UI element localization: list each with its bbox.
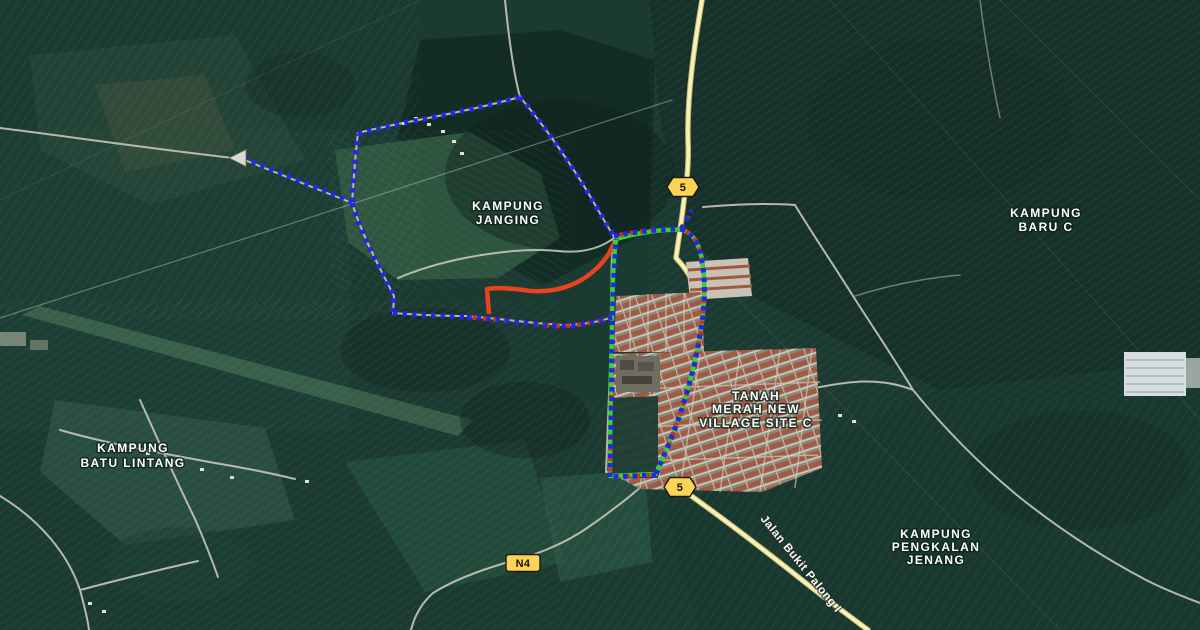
svg-text:BATU LINTANG: BATU LINTANG [80,456,185,470]
svg-text:JANGING: JANGING [476,213,540,227]
svg-text:PENGKALAN: PENGKALAN [892,540,981,554]
svg-text:JENANG: JENANG [907,553,965,567]
route-shield-n4: N4 [506,555,540,572]
school-compound [616,356,660,392]
route-n4-label: N4 [516,558,531,570]
satellite-map[interactable]: 5 5 N4 Jalan Bukit Palong I KAMPUNG JANG… [0,0,1200,630]
route-5-south-label: 5 [677,482,683,494]
label-kampung-janging: KAMPUNG JANGING [472,199,544,227]
svg-text:TANAH: TANAH [732,389,780,403]
svg-text:KAMPUNG: KAMPUNG [900,527,972,541]
svg-text:KAMPUNG: KAMPUNG [472,199,544,213]
route-shield-5-north: 5 [667,178,699,197]
route-5-north-label: 5 [680,182,686,194]
svg-text:BARU C: BARU C [1018,220,1073,234]
label-kampung-baru-c: KAMPUNG BARU C [1010,206,1082,234]
svg-text:VILLAGE SITE C: VILLAGE SITE C [699,416,813,430]
terrain-layer [0,0,1200,630]
svg-text:KAMPUNG: KAMPUNG [97,441,169,455]
route-shield-5-south: 5 [664,478,696,497]
svg-text:MERAH NEW: MERAH NEW [712,402,800,416]
svg-text:KAMPUNG: KAMPUNG [1010,206,1082,220]
